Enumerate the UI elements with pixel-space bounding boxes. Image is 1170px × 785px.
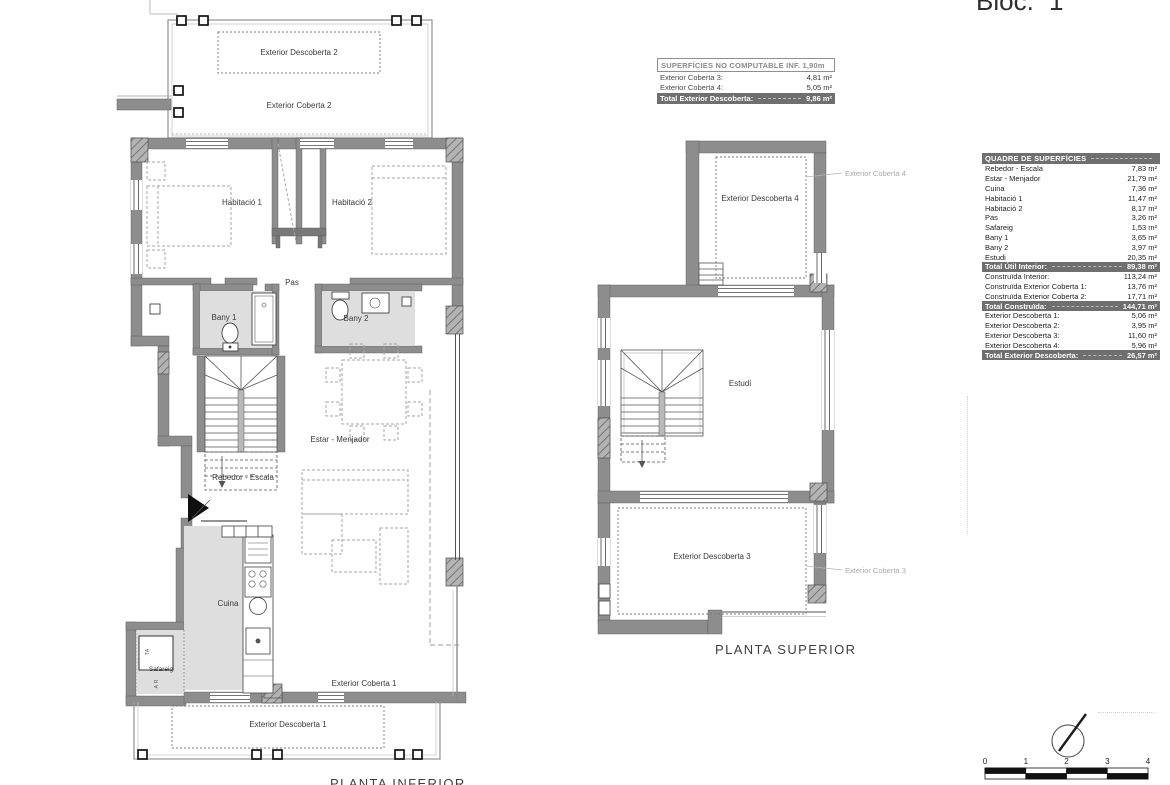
row-label: Rebedor - Escala (985, 164, 1043, 173)
table-row: Cuina7,36 m² (982, 184, 1160, 194)
table-row: Exterior Coberta 4: 5,05 m² (657, 83, 835, 94)
scale-tick-4: 4 (1146, 757, 1151, 766)
table-row: Safareig1,53 m² (982, 223, 1160, 233)
exterior-descoberta-2-label: Exterior Descoberta 2 (260, 48, 338, 57)
graphic-scale-bar: 0 1 2 3 4 (983, 757, 1151, 779)
table-row: Exterior Descoberta 2:3,95 m² (982, 321, 1160, 331)
table-row: Rebedor - Escala7,83 m² (982, 164, 1160, 174)
fine-print (1098, 712, 1154, 716)
table-row: Exterior Descoberta 1:5,06 m² (982, 311, 1160, 321)
dash-filler (758, 98, 801, 99)
row-label: Exterior Descoberta 1: (985, 311, 1060, 320)
table-row: Construïda Interior:113,24 m² (982, 272, 1160, 282)
pas-label: Pas (285, 278, 299, 287)
header-label: QUADRE DE SUPERFÍCIES (985, 154, 1086, 163)
floorplan-drawing: Exterior Descoberta 2 Exterior Coberta 2 (0, 0, 1170, 785)
row-label: Total Útil Interior: (985, 262, 1047, 271)
row-value: 89,38 m² (1127, 262, 1157, 271)
exterior-coberta-2-label: Exterior Coberta 2 (267, 101, 332, 110)
dash-filler (1052, 266, 1122, 267)
row-value: 17,71 m² (1127, 292, 1157, 301)
planta-superior-drawing: Exterior Descoberta 4 Exterior Coberta 4… (598, 141, 906, 634)
entrance-arrow (188, 494, 209, 522)
row-label: Construïda Exterior Coberta 1: (985, 282, 1087, 291)
table-total-row: Total Útil Interior:89,38 m² (982, 262, 1160, 272)
row-value: 20,35 m² (1127, 253, 1157, 262)
row-label: Construïda Interior: (985, 272, 1049, 281)
bloc-number: 1 (1049, 0, 1063, 17)
row-label: Exterior Descoberta 2: (985, 321, 1060, 330)
row-value: 3,26 m² (1132, 213, 1157, 222)
row-label: Exterior Descoberta 3: (985, 331, 1060, 340)
planta-inferior-title: PLANTA INFERIOR (330, 776, 460, 785)
row-value: 5,06 m² (1132, 311, 1157, 320)
table-row: Exterior Descoberta 4:5,96 m² (982, 340, 1160, 350)
no-computable-table: SUPERFÍCIES NO COMPUTABLE INF. 1,90m Ext… (657, 58, 835, 104)
row-value: 3,95 m² (1132, 321, 1157, 330)
no-computable-table-header: SUPERFÍCIES NO COMPUTABLE INF. 1,90m (657, 58, 835, 72)
column-markers-bottom (138, 750, 422, 759)
row-value: 9,86 m² (806, 94, 832, 103)
row-label: Exterior Descoberta 4: (985, 341, 1060, 350)
ar-label: A R (154, 680, 160, 689)
row-value: 144,71 m² (1123, 302, 1157, 311)
row-value: 1,53 m² (1132, 223, 1157, 232)
dash-filler (1052, 306, 1118, 307)
terrace-2-outline: Exterior Descoberta 2 Exterior Coberta 2 (117, 0, 432, 138)
planta-superior-title: PLANTA SUPERIOR (715, 642, 855, 657)
row-label: Estar - Menjador (985, 174, 1040, 183)
table-row: Construïda Exterior Coberta 2:17,71 m² (982, 291, 1160, 301)
habitacio2-label: Habitació 2 (332, 198, 373, 207)
scale-tick-0: 0 (983, 757, 988, 766)
row-value: 26,57 m² (1127, 351, 1157, 360)
row-value: 11,60 m² (1128, 331, 1157, 340)
exterior-descoberta-3-boundary (618, 508, 806, 614)
exterior-descoberta-4-boundary (716, 157, 806, 278)
exterior-descoberta-4-label: Exterior Descoberta 4 (721, 194, 799, 203)
row-label: Exterior Coberta 3: (660, 73, 723, 82)
row-label: Pas (985, 213, 998, 222)
planta-inferior-drawing: Exterior Descoberta 2 Exterior Coberta 2 (117, 0, 466, 759)
table-row: Exterior Descoberta 3:11,60 m² (982, 331, 1160, 341)
row-value: 3,97 m² (1132, 243, 1157, 252)
table-total-row: Total Construïda:144,71 m² (982, 301, 1160, 311)
scale-tick-2: 2 (1064, 757, 1069, 766)
exterior-descoberta-1-label: Exterior Descoberta 1 (249, 720, 327, 729)
stairs-superior (621, 350, 703, 468)
scale-tick-1: 1 (1024, 757, 1029, 766)
quadre-superficies-table: QUADRE DE SUPERFÍCIES Rebedor - Escala7,… (982, 153, 1160, 360)
ta-label: TA (145, 648, 151, 655)
bany2-label: Bany 2 (344, 314, 369, 323)
row-label: Bany 2 (985, 243, 1008, 252)
row-label: Habitació 2 (985, 204, 1023, 213)
table-row: Habitació 111,47 m² (982, 193, 1160, 203)
table-row: Exterior Coberta 3: 4,81 m² (657, 72, 835, 83)
quadre-table-header: QUADRE DE SUPERFÍCIES (982, 153, 1160, 164)
row-value: 5,05 m² (807, 83, 832, 92)
row-label: Total Construïda: (985, 302, 1047, 311)
exterior-coberta-4-label: Exterior Coberta 4 (845, 169, 906, 178)
row-label: Cuina (985, 184, 1005, 193)
stairs-inferior (205, 356, 277, 490)
row-label: Exterior Coberta 4: (660, 83, 723, 92)
table-total-row: Total Exterior Descoberta:26,57 m² (982, 350, 1160, 360)
bany1-label: Bany 1 (212, 313, 237, 322)
table-total-row: Total Exterior Descoberta: 9,86 m² (657, 93, 835, 104)
row-label: Safareig (985, 223, 1013, 232)
exterior-coberta-1-label: Exterior Coberta 1 (332, 679, 397, 688)
row-value: 7,83 m² (1132, 164, 1157, 173)
safareig-label: Safareig (149, 666, 174, 673)
dash-filler (1083, 355, 1122, 356)
rebedor-escala-label: Rebedor - Escala (212, 473, 274, 482)
north-compass-icon (1052, 714, 1086, 757)
row-label: Estudi (985, 253, 1006, 262)
scale-tick-3: 3 (1105, 757, 1110, 766)
bloc-label: Bloc. (976, 0, 1034, 17)
habitacio1-label: Habitació 1 (222, 198, 263, 207)
exterior-coberta-3-label: Exterior Coberta 3 (845, 566, 906, 575)
row-value: 5,96 m² (1132, 341, 1157, 350)
table-row: Bany 13,65 m² (982, 233, 1160, 243)
table-row: Estudi20,35 m² (982, 252, 1160, 262)
exterior-descoberta-3-label: Exterior Descoberta 3 (673, 552, 751, 561)
estudi-label: Estudi (729, 379, 751, 388)
row-value: 13,76 m² (1127, 282, 1157, 291)
row-label: Bany 1 (985, 233, 1008, 242)
cuina-label: Cuina (218, 599, 239, 608)
terrace-1-outline: Exterior Descoberta 1 (134, 702, 440, 759)
floorplan-sheet: Exterior Descoberta 2 Exterior Coberta 2 (0, 0, 1170, 785)
dash-filler (1091, 158, 1152, 159)
row-value: 21,79 m² (1127, 174, 1157, 183)
row-value: 113,24 m² (1124, 272, 1157, 281)
row-label: Habitació 1 (985, 194, 1023, 203)
row-value: 8,17 m² (1132, 204, 1157, 213)
table-row: Construïda Exterior Coberta 1:13,76 m² (982, 282, 1160, 292)
table-row: Habitació 28,17 m² (982, 203, 1160, 213)
row-value: 11,47 m² (1128, 194, 1157, 203)
revision-marks (967, 396, 968, 534)
row-label: Total Exterior Descoberta: (985, 351, 1078, 360)
row-label: Total Exterior Descoberta: (660, 94, 753, 103)
row-label: Construïda Exterior Coberta 2: (985, 292, 1087, 301)
table-row: Bany 23,97 m² (982, 242, 1160, 252)
row-value: 4,81 m² (807, 73, 832, 82)
inferior-walls (126, 138, 466, 706)
row-value: 7,36 m² (1132, 184, 1157, 193)
estar-menjador-label: Estar - Menjador (310, 435, 369, 444)
table-row: Estar - Menjador21,79 m² (982, 174, 1160, 184)
row-value: 3,65 m² (1132, 233, 1157, 242)
table-row: Pas3,26 m² (982, 213, 1160, 223)
